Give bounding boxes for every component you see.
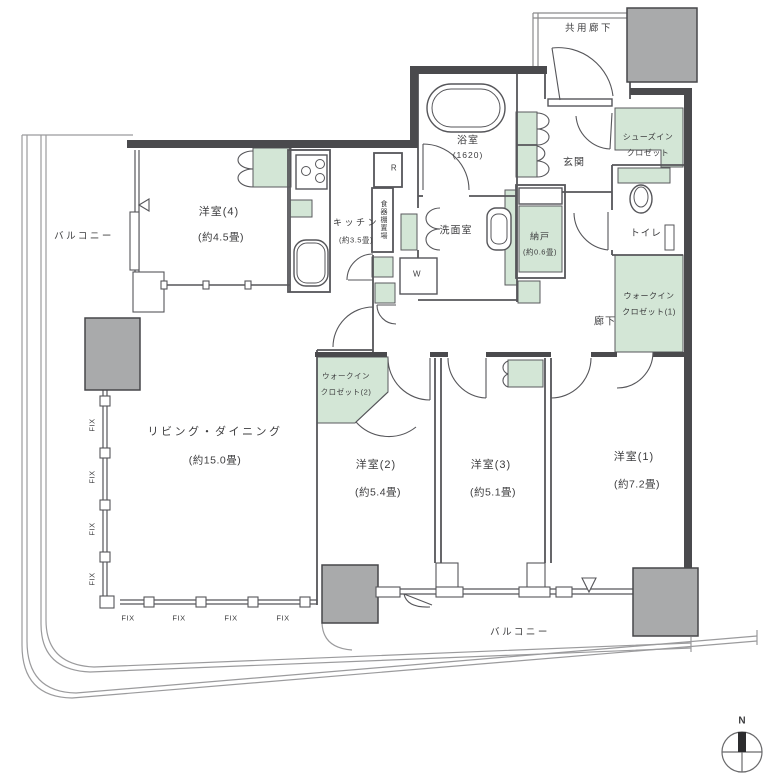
entrance-label: 玄関 <box>563 154 585 169</box>
bedroom2-size-label: (約5.4畳) <box>355 485 401 500</box>
fix-label-bottom-2: FIX <box>172 614 185 623</box>
hall-storage <box>518 281 540 303</box>
refrigerator-mark: R <box>391 164 397 173</box>
kitchen-side-storage-a <box>372 257 393 277</box>
kitchen-size-label: (約3.5畳) <box>339 235 373 246</box>
kitchen-label: キッチン <box>333 216 379 229</box>
fix-label-bottom-3: FIX <box>224 614 237 623</box>
north-label: N <box>738 716 745 727</box>
fix-label-bottom-1: FIX <box>121 614 134 623</box>
balcony-bottom-label: バルコニー <box>490 624 550 638</box>
cupboard-space-label: 食器棚置場 <box>378 200 388 240</box>
wic2-label-1: ウォークイン <box>322 371 370 382</box>
wic2-label-2: クロゼット(2) <box>321 387 372 398</box>
bathroom-size-label: (1620) <box>453 150 484 160</box>
bathroom-label: 浴室 <box>457 132 479 147</box>
compass <box>722 732 762 772</box>
washroom-label: 洗面室 <box>440 222 473 237</box>
pillar-left <box>85 318 140 390</box>
living-door <box>333 307 373 347</box>
hallway-label: 廊下 <box>594 313 616 328</box>
storeroom-shelf <box>519 188 562 204</box>
bedroom2-label: 洋室(2) <box>356 456 396 472</box>
wic1-label-2: クロゼット(1) <box>622 307 676 318</box>
bedroom3-label: 洋室(3) <box>471 456 511 472</box>
common-corridor-label: 共用廊下 <box>565 20 613 34</box>
front-door <box>552 48 613 100</box>
living-dining-label: リビング・ダイニング <box>148 423 283 439</box>
fix-label-left-1: FIX <box>88 418 97 431</box>
balcony-door <box>404 594 432 607</box>
shoes-closet-door <box>576 113 612 149</box>
living-dining-size-label: (約15.0畳) <box>189 453 241 468</box>
washroom-door <box>426 208 440 250</box>
pillar-bottom-center <box>322 565 378 623</box>
washer-mark: W <box>413 270 421 279</box>
bedroom3-size-label: (約5.1畳) <box>470 485 516 500</box>
walk-in-closet1-area <box>615 255 683 352</box>
bedroom4-closet <box>253 148 291 187</box>
window-mark-left <box>139 199 149 211</box>
bedroom1-label: 洋室(1) <box>614 448 654 464</box>
entrance-sill <box>548 99 612 106</box>
fix-label-left-2: FIX <box>88 470 97 483</box>
bedroom1-size-label: (約7.2畳) <box>614 477 660 492</box>
wic1-door <box>617 352 653 388</box>
storeroom-size-label: (約0.6畳) <box>523 247 557 258</box>
floorplan-canvas: 共用廊下 シューズイン クロゼット 玄関 浴室 (1620) 洗面室 納戸 (約… <box>0 0 774 783</box>
storeroom-label: 納戸 <box>530 230 550 243</box>
toilet-door <box>574 212 608 250</box>
balcony-left-label: バルコニー <box>54 228 114 242</box>
bedroom2-door <box>388 358 430 400</box>
kitchen-side-storage-b <box>375 283 395 303</box>
bedroom3-door <box>448 358 486 398</box>
shoes-closet-label-1: シューズイン <box>623 132 674 143</box>
compass-needle <box>738 732 746 752</box>
fix-label-left-3: FIX <box>88 522 97 535</box>
kitchen-storage <box>290 200 312 217</box>
bedroom4-label: 洋室(4) <box>199 203 239 219</box>
wic1-label-1: ウォークイン <box>624 291 675 302</box>
fix-label-left-4: FIX <box>88 572 97 585</box>
toilet-label: トイレ <box>630 225 662 239</box>
toilet-tank-counter <box>618 168 670 183</box>
washroom-shelf <box>401 214 417 250</box>
pillar-top-right <box>627 8 697 82</box>
bedroom4-size-label: (約4.5畳) <box>198 230 244 245</box>
window-mark-bottom <box>582 578 596 592</box>
fix-label-bottom-4: FIX <box>276 614 289 623</box>
shoes-closet-label-2: クロゼット <box>627 148 670 159</box>
bedroom1-door <box>551 358 591 398</box>
floorplan-drawing <box>0 0 774 783</box>
pillar-bottom-right <box>633 568 698 636</box>
bedroom3-closet <box>508 360 543 387</box>
